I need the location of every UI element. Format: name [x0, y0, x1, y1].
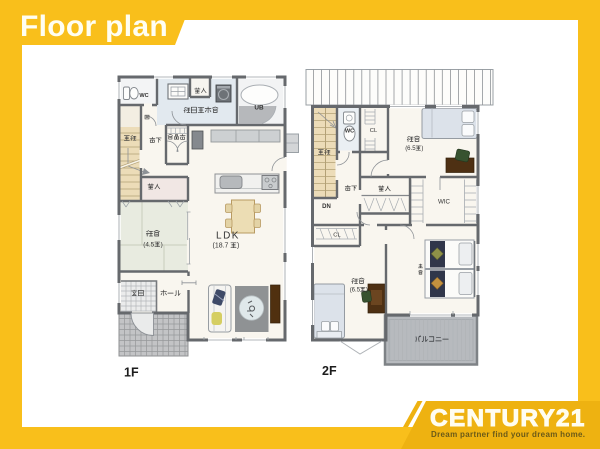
svg-text:DN: DN [322, 204, 331, 210]
svg-text:): ) [366, 288, 368, 294]
svg-text:(6.5: (6.5 [405, 146, 416, 152]
svg-text:CL: CL [370, 128, 378, 134]
svg-text:WC: WC [139, 93, 148, 99]
svg-text:): ) [421, 146, 423, 152]
svg-text:1F: 1F [124, 366, 139, 380]
svg-text:WIC: WIC [438, 199, 451, 206]
svg-text:(6.5: (6.5 [350, 288, 361, 294]
svg-text:LDK: LDK [216, 231, 240, 242]
svg-text:UB: UB [254, 105, 264, 112]
svg-text:2F: 2F [322, 364, 337, 378]
svg-text:CL: CL [333, 233, 341, 239]
svg-text:): ) [237, 243, 239, 250]
svg-text:): ) [161, 242, 163, 249]
svg-text:WC: WC [345, 129, 354, 135]
svg-text:(18.7: (18.7 [213, 243, 229, 250]
svg-text:(4.5: (4.5 [143, 242, 154, 249]
